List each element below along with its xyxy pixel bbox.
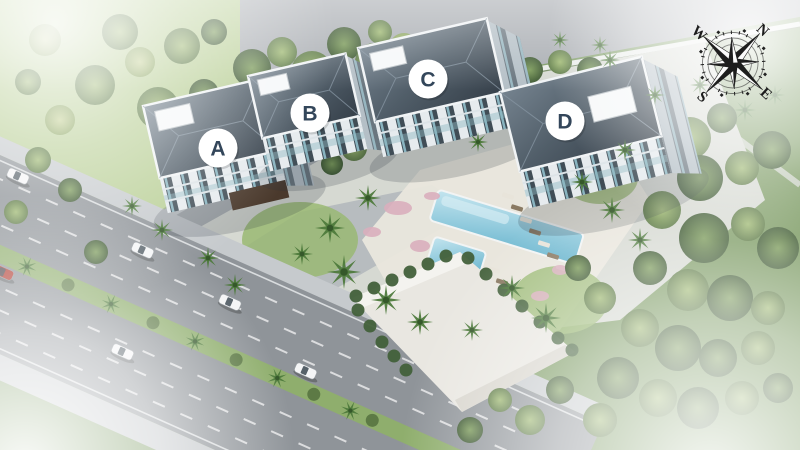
building-label-a: A <box>210 137 225 160</box>
building-label-c: C <box>420 68 435 91</box>
site-plan-canvas: A B C D N E S W <box>0 0 800 450</box>
haze-bottom-left <box>0 0 800 450</box>
haze-vignette <box>0 0 800 450</box>
building-label-d: D <box>557 110 572 133</box>
building-label-b: B <box>302 102 317 125</box>
aerial-render: A B C D N E S W <box>0 0 800 450</box>
